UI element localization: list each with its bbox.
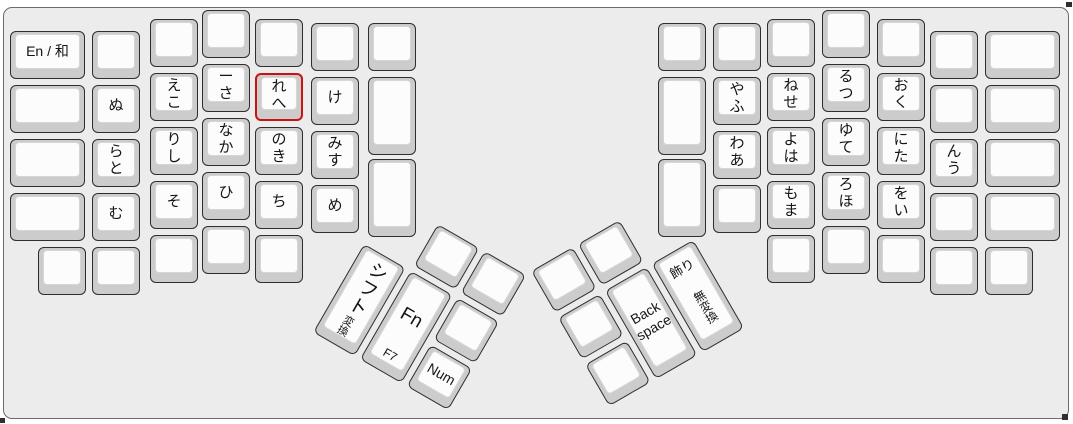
key-chouon-sa[interactable]: ーさ — [202, 64, 250, 112]
key-blank[interactable] — [930, 247, 978, 295]
keycap-top — [663, 26, 701, 61]
keycap-top: む — [97, 196, 135, 231]
key-blank[interactable] — [985, 193, 1060, 241]
keycap-top: Num — [416, 350, 466, 399]
key-legend: よ — [783, 131, 798, 148]
key-chi[interactable]: ち — [255, 181, 303, 229]
key-legend: ろ — [838, 176, 853, 193]
keycap-top — [990, 250, 1028, 285]
keycap-top: もま — [772, 184, 810, 219]
keycap-top — [423, 229, 473, 278]
keycap-top — [470, 256, 520, 305]
keycap-top: ろほ — [827, 175, 865, 210]
key-me[interactable]: め — [311, 185, 359, 233]
key-ro-ho[interactable]: ろほ — [822, 172, 870, 220]
key-blank[interactable] — [713, 23, 761, 71]
key-blank[interactable] — [713, 185, 761, 233]
keyboard-layout-canvas: En / 和ぬらとむえこりしそーさなかひれへのきちけみすめやふわあねせよはもまる… — [0, 0, 1073, 424]
key-legend: き — [271, 148, 286, 165]
key-blank[interactable] — [92, 31, 140, 79]
key-legend: ね — [783, 77, 798, 94]
key-legend: つ — [838, 85, 853, 102]
key-blank[interactable] — [767, 235, 815, 283]
key-blank[interactable] — [368, 23, 416, 71]
key-legend: ん — [946, 143, 961, 160]
key-ra-to[interactable]: らと — [92, 139, 140, 187]
keycap-top: らと — [97, 142, 135, 177]
keycap-top: りし — [155, 130, 193, 165]
keycap-top: ぬ — [97, 88, 135, 123]
key-legend: は — [783, 148, 798, 165]
key-legend: Num — [420, 353, 462, 396]
key-legend: あ — [729, 152, 744, 169]
key-legend: す — [327, 152, 342, 169]
key-blank[interactable] — [658, 23, 706, 71]
key-legend: お — [893, 77, 908, 94]
keycap-top — [827, 229, 865, 264]
key-legend: ま — [783, 202, 798, 219]
key-legend: か — [218, 139, 233, 156]
key-blank[interactable] — [985, 31, 1060, 79]
keycap-top — [935, 196, 973, 231]
keycap-top: よは — [772, 130, 810, 165]
keycap-top: にた — [882, 130, 920, 165]
keycap-top: け — [316, 80, 354, 115]
key-legend: 無変換 — [689, 288, 719, 326]
key-ya-fu[interactable]: やふ — [713, 77, 761, 125]
keycap-top: め — [316, 188, 354, 223]
key-wo-i[interactable]: をい — [877, 181, 925, 229]
key-e-ko[interactable]: えこ — [150, 73, 198, 121]
key-blank[interactable] — [38, 247, 86, 295]
key-blank[interactable] — [822, 10, 870, 58]
key-legend: や — [729, 81, 744, 98]
keycap-top — [155, 22, 193, 57]
keycap-top — [591, 346, 641, 395]
keycap-top — [260, 238, 298, 273]
key-blank[interactable] — [150, 235, 198, 283]
keycap-top: ち — [260, 184, 298, 219]
keycap-top: そ — [155, 184, 193, 219]
keycap-top — [43, 250, 81, 285]
key-legend: そ — [166, 185, 181, 218]
key-legend: ひ — [218, 176, 233, 209]
key-re-he[interactable]: れへ — [255, 73, 303, 121]
key-ri-shi[interactable]: りし — [150, 127, 198, 175]
key-blank[interactable] — [985, 139, 1060, 187]
keycap-top — [97, 34, 135, 69]
keycap-top — [882, 22, 920, 57]
key-wa-a[interactable]: わあ — [713, 131, 761, 179]
resize-handle-top-right[interactable] — [1066, 2, 1072, 7]
keycap-top — [990, 88, 1055, 123]
key-blank[interactable] — [985, 247, 1033, 295]
key-blank[interactable] — [368, 77, 416, 155]
key-legend: れ — [271, 78, 286, 95]
key-legend: シフト — [341, 254, 392, 321]
key-blank[interactable] — [255, 19, 303, 67]
key-mi-su[interactable]: みす — [311, 131, 359, 179]
key-legend: う — [946, 160, 961, 177]
key-ru-tsu[interactable]: るつ — [822, 64, 870, 112]
key-blank[interactable] — [985, 85, 1060, 133]
keycap-top — [15, 196, 80, 231]
key-mo-ma[interactable]: もま — [767, 181, 815, 229]
key-legend: さ — [218, 85, 233, 102]
key-yo-ha[interactable]: よは — [767, 127, 815, 175]
key-legend: に — [893, 131, 908, 148]
keycap-top — [935, 88, 973, 123]
keycap-top: わあ — [718, 134, 756, 169]
key-legend: En / 和 — [26, 35, 69, 68]
key-yu-te[interactable]: ゆて — [822, 118, 870, 166]
keycap-top: ねせ — [772, 76, 810, 111]
key-blank[interactable] — [255, 235, 303, 283]
keycap-top: おく — [882, 76, 920, 111]
keycap-top: れへ — [261, 77, 297, 110]
key-ke[interactable]: け — [311, 77, 359, 125]
keycap-top — [260, 22, 298, 57]
keycap-top: やふ — [718, 80, 756, 115]
key-legend: へ — [271, 95, 286, 110]
key-nu[interactable]: ぬ — [92, 85, 140, 133]
key-legend: 変換 — [334, 312, 356, 337]
key-legend: も — [783, 185, 798, 202]
key-legend: せ — [783, 94, 798, 111]
keycap-top — [990, 196, 1055, 231]
key-legend: Fn — [383, 281, 439, 355]
keycap-top — [718, 188, 756, 223]
key-ne-se[interactable]: ねせ — [767, 73, 815, 121]
keycap-top: のき — [260, 130, 298, 165]
key-blank[interactable] — [658, 77, 706, 155]
key-legend: を — [893, 185, 908, 202]
key-blank[interactable] — [10, 139, 85, 187]
keycap-top — [15, 142, 80, 177]
key-legend: え — [166, 77, 181, 94]
keycap-top — [373, 26, 411, 61]
key-legend: F7 — [380, 346, 399, 365]
key-legend: ー — [218, 68, 233, 85]
key-blank[interactable] — [150, 19, 198, 67]
key-blank[interactable] — [930, 85, 978, 133]
keycap-top — [316, 26, 354, 61]
keycap-top — [97, 250, 135, 285]
key-legend: ら — [108, 143, 123, 160]
key-en-wa[interactable]: En / 和 — [10, 31, 85, 79]
key-legend: る — [838, 68, 853, 85]
key-legend: り — [166, 131, 181, 148]
keycap-top: えこ — [155, 76, 193, 111]
key-blank[interactable] — [10, 193, 85, 241]
keycap-top — [772, 238, 810, 273]
key-legend: み — [327, 135, 342, 152]
keycap-top — [373, 80, 411, 145]
keycap-top — [155, 238, 193, 273]
key-legend: む — [108, 197, 123, 230]
keycap-top: ひ — [207, 175, 245, 210]
key-legend: し — [166, 148, 181, 165]
keycap-top — [935, 250, 973, 285]
resize-handle-bottom-left[interactable] — [0, 418, 5, 423]
keycap-top — [882, 238, 920, 273]
key-blank[interactable] — [877, 235, 925, 283]
key-legend: ち — [271, 185, 286, 218]
keycap-top — [564, 299, 614, 348]
key-ni-ta[interactable]: にた — [877, 127, 925, 175]
resize-handle-bottom-right[interactable] — [1062, 414, 1068, 420]
key-blank[interactable] — [930, 193, 978, 241]
key-o-ku[interactable]: おく — [877, 73, 925, 121]
key-legend: ふ — [729, 98, 744, 115]
keycap-top — [443, 303, 493, 352]
keycap-top — [718, 26, 756, 61]
key-blank[interactable] — [930, 31, 978, 79]
keycap-top: En / 和 — [15, 34, 80, 69]
key-legend: い — [893, 202, 908, 219]
keycap-top: みす — [316, 134, 354, 169]
keycap-top: るつ — [827, 67, 865, 102]
key-mu[interactable]: む — [92, 193, 140, 241]
keycap-top — [935, 34, 973, 69]
keycap-top — [207, 13, 245, 48]
key-legend: こ — [166, 94, 181, 111]
keycap-top — [584, 225, 634, 274]
key-legend: ぬ — [108, 89, 123, 122]
keycap-top — [990, 142, 1055, 177]
key-legend: わ — [729, 135, 744, 152]
keycap-top — [15, 88, 80, 123]
keycap-top — [990, 34, 1055, 69]
keycap-top — [772, 22, 810, 57]
key-legend: く — [893, 94, 908, 111]
keycap-top — [663, 80, 701, 145]
keycap-top — [207, 229, 245, 264]
key-hi[interactable]: ひ — [202, 172, 250, 220]
key-legend: な — [218, 122, 233, 139]
key-legend: 飾り — [668, 257, 698, 283]
key-blank[interactable] — [202, 10, 250, 58]
key-legend: て — [838, 139, 853, 156]
key-legend: ほ — [838, 193, 853, 210]
keycap-top — [827, 13, 865, 48]
key-legend: と — [108, 160, 123, 177]
keycap-top — [537, 252, 587, 301]
key-n-u[interactable]: んう — [930, 139, 978, 187]
key-legend: け — [327, 81, 342, 114]
key-so[interactable]: そ — [150, 181, 198, 229]
key-blank[interactable] — [92, 247, 140, 295]
key-blank[interactable] — [311, 23, 359, 71]
key-blank[interactable] — [10, 85, 85, 133]
keycap-top: んう — [935, 142, 973, 177]
key-legend: ゆ — [838, 122, 853, 139]
keycap-top: をい — [882, 184, 920, 219]
key-blank[interactable] — [822, 226, 870, 274]
keycap-top: ーさ — [207, 67, 245, 102]
key-no-ki[interactable]: のき — [255, 127, 303, 175]
key-na-ka[interactable]: なか — [202, 118, 250, 166]
key-blank[interactable] — [767, 19, 815, 67]
key-legend: の — [271, 131, 286, 148]
key-blank[interactable] — [877, 19, 925, 67]
keycap-top: なか — [207, 121, 245, 156]
key-legend: め — [327, 189, 342, 222]
keycap-top: ゆて — [827, 121, 865, 156]
key-blank[interactable] — [202, 226, 250, 274]
key-legend: た — [893, 148, 908, 165]
